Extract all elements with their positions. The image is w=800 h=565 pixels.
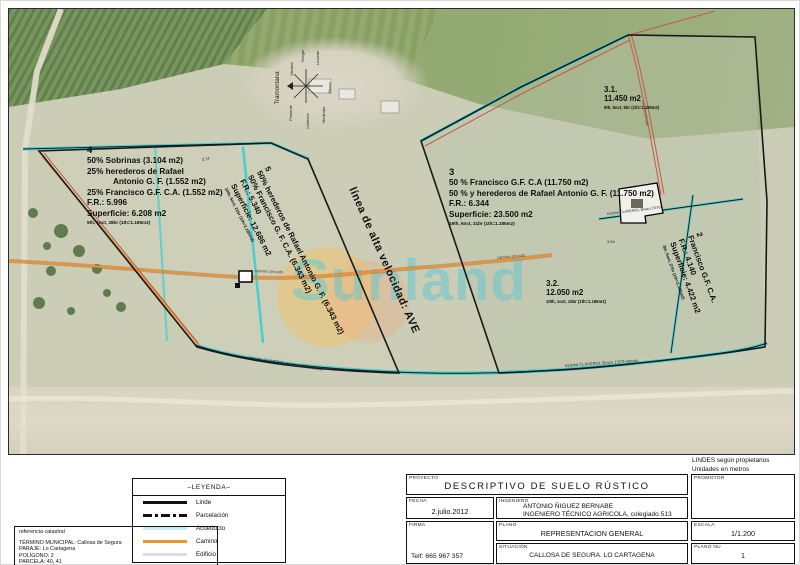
- proyecto-label: PROYECTO: [409, 476, 438, 481]
- proyecto-value: DESCRIPTIVO DE SUELO RÚSTICO: [407, 481, 687, 492]
- north-arrow-icon: [287, 82, 293, 90]
- fecha-value: 2.julio.2012: [407, 507, 493, 516]
- parcel-3-line: Superficie: 23.500 m2: [449, 210, 654, 221]
- parcel-4-annotation: 4 50% Sobrinas (3.104 m2) 25% herederos …: [87, 145, 223, 226]
- parcel-3-annotation: 3 50 % Francisco G.F. C.A (11.750 m2) 50…: [449, 167, 654, 227]
- situacion-label: SITUACIÓN: [499, 545, 528, 550]
- edificio-camino: [235, 271, 252, 288]
- reference-title: referencia catastral: [19, 529, 213, 536]
- parcel-3-line: 50 % Francisco G.F. C.A (11.750 m2): [449, 178, 654, 189]
- cell-plano: PLANO REPRESENTACION GENERAL: [496, 521, 688, 541]
- linde-line-swatch: [143, 501, 187, 504]
- situacion-value: CALLOSA DE SEGURA. LO CARTAGENA: [497, 552, 687, 559]
- plano-num-label: PLANO nu: [694, 545, 721, 550]
- parcel-4-line: Superficie: 6.208 m2: [87, 209, 223, 220]
- parcelacion-line-swatch: [143, 514, 187, 517]
- parcel-4-line: 50% Sobrinas (3.104 m2): [87, 156, 223, 167]
- telefono-value: Telf: 665 967 357: [411, 553, 463, 560]
- cell-escala: ESCALA 1/1.200: [691, 521, 795, 541]
- parcel-4-units: 5th, 1oct, 28br (1th=1.185m2): [87, 219, 223, 226]
- parcel-32-units: 10th, 1oct, 10br (1th=1.185m2): [546, 298, 606, 305]
- compass-label-mestral: Mestral: [289, 62, 294, 75]
- reference-parcela: PARCELA: 40, 41: [19, 559, 213, 565]
- plano-num-value: 1: [692, 551, 794, 560]
- parcel-31-id: 3.1.: [604, 85, 659, 94]
- parcel-4-line: 25% herederos de Rafael: [87, 167, 223, 178]
- cell-proyecto: PROYECTO DESCRIPTIVO DE SUELO RÚSTICO: [406, 474, 688, 495]
- dim-label-354: 3.54: [607, 239, 616, 244]
- plano-value: REPRESENTACION GENERAL: [497, 529, 687, 538]
- firma-label: Firma: [409, 523, 425, 528]
- parcel-4-line: F.R.: 5.996: [87, 198, 223, 209]
- cell-fecha: Fecha 2.julio.2012: [406, 497, 494, 519]
- map-linework: Tramontana Mestral Gregal Levante Siroco…: [9, 9, 794, 454]
- parcel-32-id: 3.2.: [546, 279, 606, 288]
- reference-municipio: TÉRMINO MUNICIPAL: Callosa de Segura: [19, 540, 213, 547]
- compass-label-levante: Levante: [315, 50, 320, 65]
- cell-plano-num: PLANO nu 1: [691, 543, 795, 564]
- compass-label-tramontana: Tramontana: [274, 71, 281, 105]
- escala-label: ESCALA: [694, 523, 715, 528]
- compass-label-siroco: Siroco: [327, 82, 332, 94]
- compass-label-mediodia: Mediodía: [321, 106, 326, 123]
- ave-line-label: línea de alta velocidad: AVE: [346, 185, 422, 335]
- legend-item-parcelacion: Parcelación: [133, 509, 285, 522]
- compass-label-lebeche: Lebeche: [305, 113, 310, 129]
- parcel-3-line: 50 % y herederos de Rafael Antonio G. F.…: [449, 189, 654, 200]
- cell-firma: Firma Telf: 665 967 357: [406, 521, 494, 564]
- legend-item-linde: Linde: [133, 496, 285, 509]
- escala-value: 1/1.200: [692, 529, 794, 538]
- title-block: PROYECTO DESCRIPTIVO DE SUELO RÚSTICO PR…: [406, 474, 795, 564]
- cell-situacion: SITUACIÓN CALLOSA DE SEGURA. LO CARTAGEN…: [496, 543, 688, 564]
- parcel-31-annotation: 3.1. 11.450 m2 9th, 5oct, 8br (1th=1.185…: [604, 85, 659, 111]
- cadastral-reference-box: referencia catastral TÉRMINO MUNICIPAL: …: [14, 526, 218, 565]
- parcel-32-annotation: 3.2. 12.050 m2 10th, 1oct, 10br (1th=1.1…: [546, 279, 606, 305]
- aerial-map: Sunland: [8, 8, 795, 455]
- parcel-4-line: 25% Francisco G.F. C.A. (1.552 m2): [87, 188, 223, 199]
- ingeniero-name: ANTONIO ÑIGUEZ BERNABE: [523, 503, 687, 510]
- plan-sheet: Sunland: [0, 0, 800, 565]
- parcel-3-line: F.R.: 6.344: [449, 199, 654, 210]
- parcel-3-id: 3: [449, 167, 654, 178]
- fecha-label: Fecha: [409, 499, 427, 504]
- parcel-4-line: Antonio G. F. (1.552 m2): [87, 177, 223, 188]
- parcel-32-area: 12.050 m2: [546, 288, 606, 298]
- compass-label-poniente: Poniente: [288, 104, 293, 121]
- legend-label: Linde: [196, 499, 211, 506]
- parcel-4-id: 4: [87, 145, 223, 156]
- lindes-note-line1: LINDES según propietarios: [692, 456, 769, 465]
- lindes-note: LINDES según propietarios Unidades en me…: [692, 456, 769, 474]
- parcel-31-area: 11.450 m2: [604, 94, 659, 104]
- reference-paraje: PARAJE: Lo Cartagena: [19, 546, 213, 553]
- plano-label: PLANO: [499, 523, 517, 528]
- parcel-3-units: 19th, 6oct, 21br (1th=1.185m2): [449, 220, 654, 227]
- legend-title: –LEYENDA–: [133, 479, 285, 496]
- azarbe-label-left: Azarbe CLAVEROL Medio 1'079 metros: [249, 355, 323, 372]
- compass-label-gregal: Gregal: [300, 50, 305, 62]
- promotor-label: PROMOTOR: [694, 476, 725, 481]
- cell-promotor: PROMOTOR: [691, 474, 795, 519]
- ingeniero-label: INGENIERO: [499, 499, 529, 504]
- cell-ingeniero: INGENIERO ANTONIO ÑIGUEZ BERNABE INGENIE…: [496, 497, 688, 519]
- legend-label: Parcelación: [196, 512, 228, 519]
- reference-poligono: POLÍGONO: 2: [19, 553, 213, 560]
- parcel-31-units: 9th, 5oct, 8br (1th=1.185m2): [604, 104, 659, 111]
- ingeniero-degree: INGENIERO TÉCNICO AGRICOLA, colegiado 51…: [523, 511, 687, 518]
- dirt-path-bottom: [9, 391, 794, 405]
- lindes-note-line2: Unidades en metros: [692, 465, 769, 474]
